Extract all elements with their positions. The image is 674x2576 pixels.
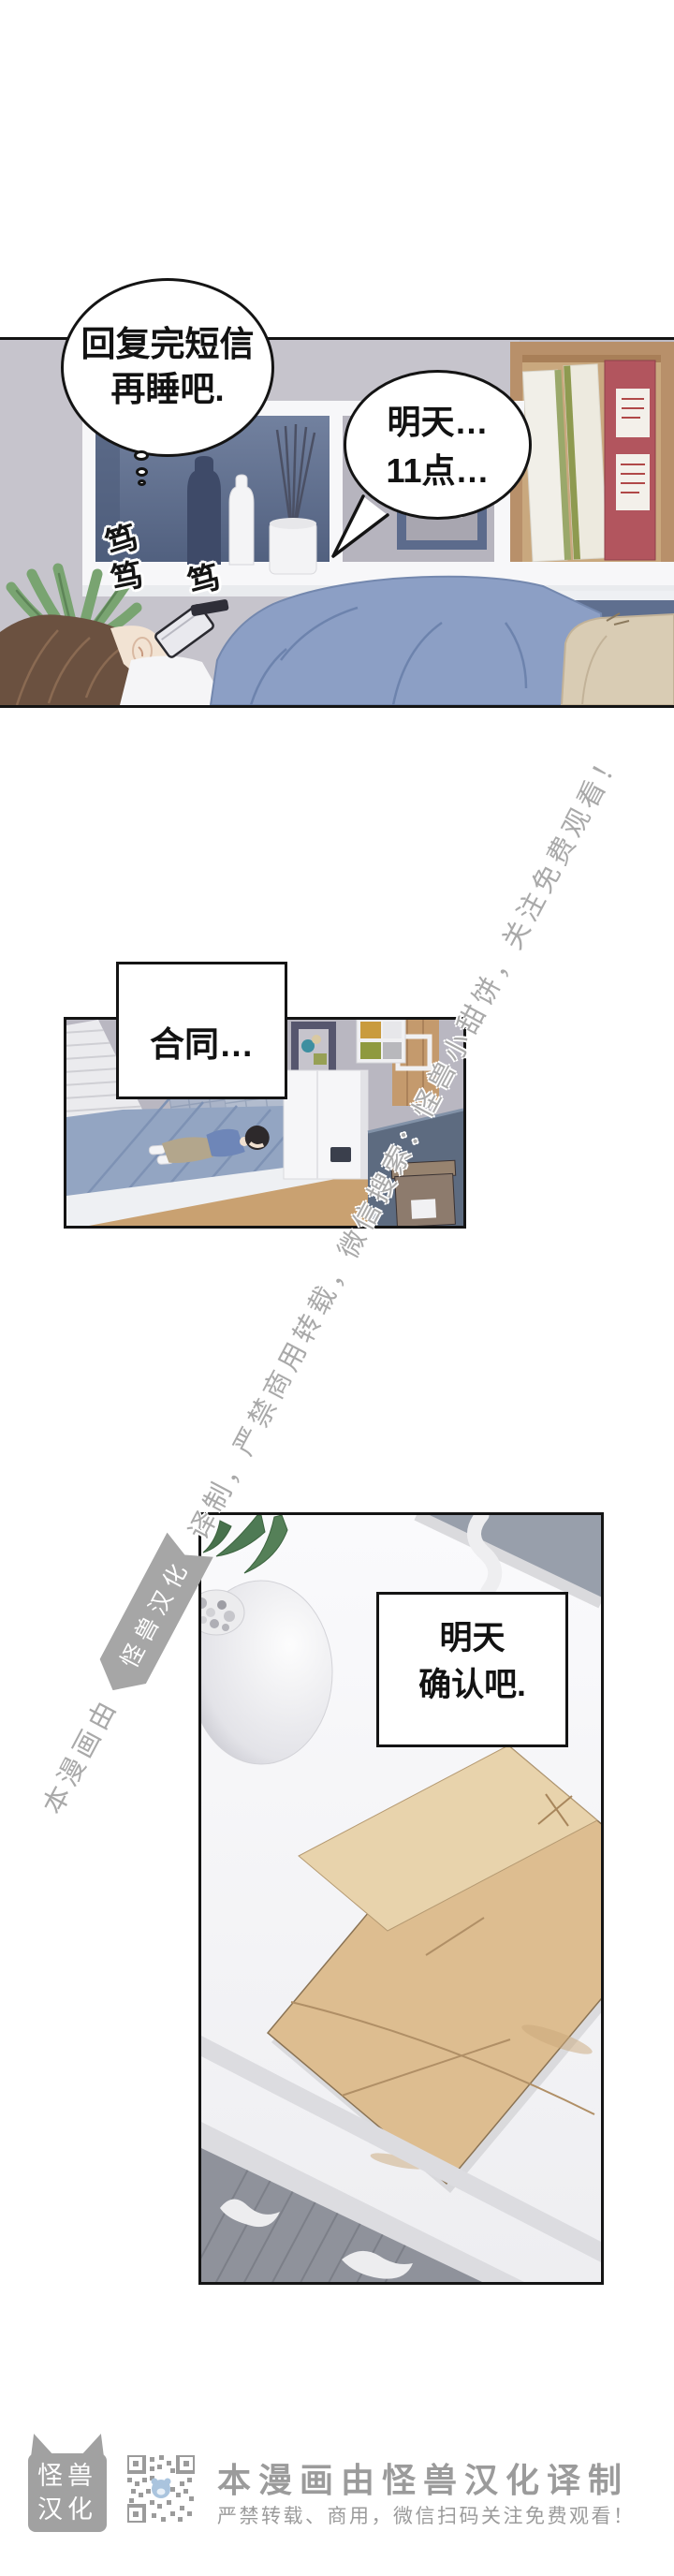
pillow xyxy=(562,613,674,705)
thought-dot xyxy=(136,467,148,477)
thought-line1: 回复完短信 xyxy=(64,322,271,367)
thought-dot xyxy=(134,450,149,461)
logo-line1: 怪兽 xyxy=(28,2459,107,2493)
footer-title: 本漫画由怪兽汉化译制 xyxy=(217,2453,629,2502)
watermark-prefix: 本漫画由 xyxy=(31,1689,125,1820)
caption3-line2: 确认吧. xyxy=(379,1662,565,1709)
thought-bubble: 回复完短信 再睡吧. xyxy=(61,278,274,457)
caption3-line1: 明天 xyxy=(379,1615,565,1662)
studio-logo: 怪兽 汉化 xyxy=(28,2453,107,2532)
footer-subtitle: 严禁转载、商用，微信扫码关注免费观看！ xyxy=(217,2501,636,2529)
comic-page: 回复完短信 再睡吧. 明天… 11点… 笃 笃 笃 xyxy=(0,0,674,2576)
watermark-ribbon: 怪兽汉化 xyxy=(90,1533,213,1703)
qr-bear-icon xyxy=(152,2479,171,2499)
bookshelf xyxy=(510,342,674,576)
caption-text: 合同… xyxy=(150,1025,254,1064)
panel1-bottom-border xyxy=(0,705,674,708)
speech-tail xyxy=(330,494,397,562)
speech-line1: 明天… xyxy=(346,398,529,447)
caption-box: 合同… xyxy=(116,962,287,1099)
speech-line2: 11点… xyxy=(346,447,529,495)
thought-line2: 再睡吧. xyxy=(64,367,271,412)
thought-dot xyxy=(138,479,146,486)
books xyxy=(522,364,608,562)
logo-line2: 汉化 xyxy=(28,2493,107,2526)
red-book xyxy=(605,361,655,560)
qr-code xyxy=(127,2455,195,2523)
wardrobe xyxy=(284,1070,368,1179)
caption-box-3: 明天 确认吧. xyxy=(376,1592,568,1747)
